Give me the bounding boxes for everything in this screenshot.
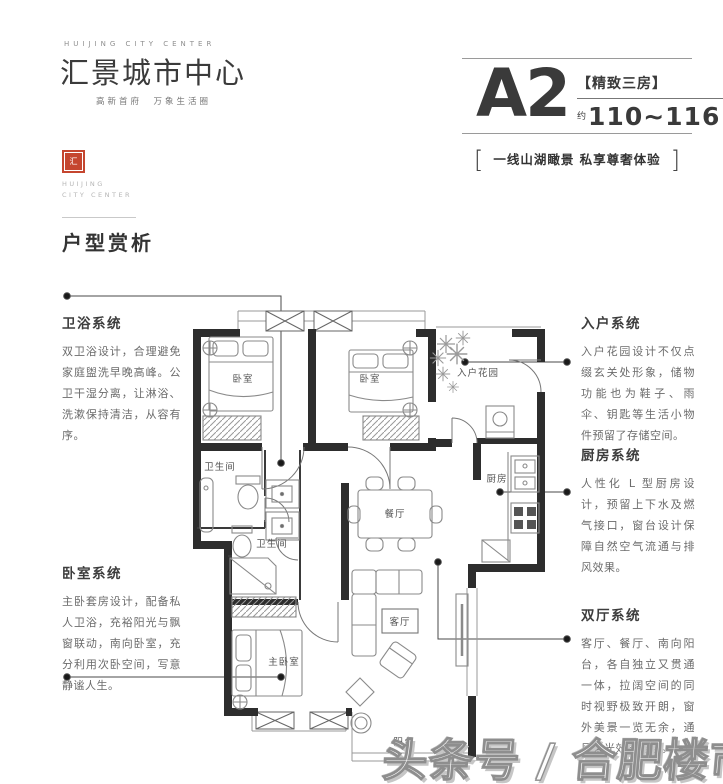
room-label-bedroom2: 卧室	[359, 373, 380, 385]
note-kitchen: 厨房系统 人性化 L 型厨房设计，预留上下水及燃气接口，窗台设计保障自然空气流通…	[581, 444, 695, 578]
logo-english: HUIJING CITY CENTER	[64, 40, 215, 48]
furniture	[200, 337, 539, 733]
room-label-entry-garden: 入户花园	[457, 367, 499, 379]
bracket-left: [	[474, 146, 483, 174]
room-label-living: 客厅	[389, 616, 410, 628]
note-bath: 卫浴系统 双卫浴设计，合理避免家庭盥洗早晚高峰。公卫干湿分离，让淋浴、洗漱保持清…	[62, 312, 181, 446]
note-entry: 入户系统 入户花园设计不仅点缀玄关处形象，储物功能也为鞋子、雨伞、钥匙等生活小物…	[581, 312, 695, 446]
watermark: 头条号 / 合肥楼市点评	[380, 724, 723, 784]
walls-thick	[193, 329, 545, 757]
unit-name: A2	[476, 63, 569, 125]
bracket-right: ]	[671, 146, 680, 174]
area-approx: 约	[577, 112, 586, 122]
unit-slogan: 一线山湖瞰景 私享尊奢体验	[493, 152, 660, 167]
unit-tag: 【精致三房】	[577, 73, 723, 93]
red-seal-icon: 汇	[62, 150, 85, 173]
note-bedroom-title: 卧室系统	[62, 562, 181, 582]
note-kitchen-body: 人性化 L 型厨房设计，预留上下水及燃气接口，窗台设计保障自然空气流通与排风效果…	[581, 473, 695, 578]
seal-english-line1: HUIJING	[62, 180, 105, 188]
seal-english-line2: CITY CENTER	[62, 191, 132, 199]
unit-tag-rule	[577, 98, 723, 99]
seal-glyph: 汇	[64, 152, 83, 171]
note-entry-body: 入户花园设计不仅点缀玄关处形象，储物功能也为鞋子、雨伞、钥匙等生活小物件预留了存…	[581, 341, 695, 446]
unit-slogan-row: [一线山湖瞰景 私享尊奢体验]	[462, 146, 692, 174]
section-title: 户型赏析	[62, 227, 154, 256]
area-value: 110~116	[588, 102, 720, 131]
logo-tagline: 高新首府 万象生活圈	[96, 95, 211, 107]
room-label-dining: 餐厅	[384, 508, 405, 520]
walls-medium	[228, 441, 541, 602]
note-bedroom-body: 主卧套房设计，配备私人卫浴，充裕阳光与飘窗联动，南向卧室，充分利用次卧空间，写意…	[62, 591, 181, 696]
poster-page: HUIJING CITY CENTER 汇景城市中心 高新首府 万象生活圈 汇 …	[0, 0, 723, 784]
logo-chinese: 汇景城市中心	[60, 50, 246, 92]
note-entry-title: 入户系统	[581, 312, 695, 332]
room-label-kitchen: 厨房	[486, 473, 507, 485]
door-arcs	[262, 360, 541, 642]
room-label-bedroom1: 卧室	[232, 373, 253, 385]
room-label-bath2: 卫生间	[256, 538, 288, 550]
room-label-master: 主卧室	[268, 656, 300, 668]
unit-header: A2 【精致三房】 约110~116m² [一线山湖瞰景 私享尊奢体验]	[462, 58, 692, 174]
room-label-bath1: 卫生间	[204, 461, 236, 473]
note-bedroom: 卧室系统 主卧套房设计，配备私人卫浴，充裕阳光与飘窗联动，南向卧室，充分利用次卧…	[62, 562, 181, 696]
unit-area-row: 约110~116m²	[577, 102, 723, 131]
note-bath-title: 卫浴系统	[62, 312, 181, 332]
header-bottom-rule	[462, 133, 692, 134]
note-living-title: 双厅系统	[581, 604, 695, 624]
note-kitchen-title: 厨房系统	[581, 444, 695, 464]
note-bath-body: 双卫浴设计，合理避免家庭盥洗早晚高峰。公卫干湿分离，让淋浴、洗漱保持清洁，从容有…	[62, 341, 181, 446]
section-divider	[62, 217, 136, 218]
